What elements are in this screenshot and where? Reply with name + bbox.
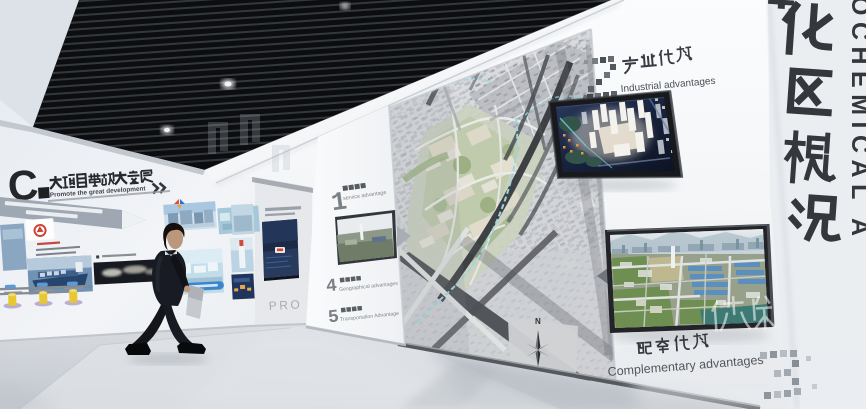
svg-text:OCHEMICAL A: OCHEMICAL A	[846, 0, 866, 243]
svg-text:PRO: PRO	[268, 297, 302, 313]
svg-text:5: 5	[327, 307, 340, 328]
svg-text:4: 4	[325, 276, 338, 297]
